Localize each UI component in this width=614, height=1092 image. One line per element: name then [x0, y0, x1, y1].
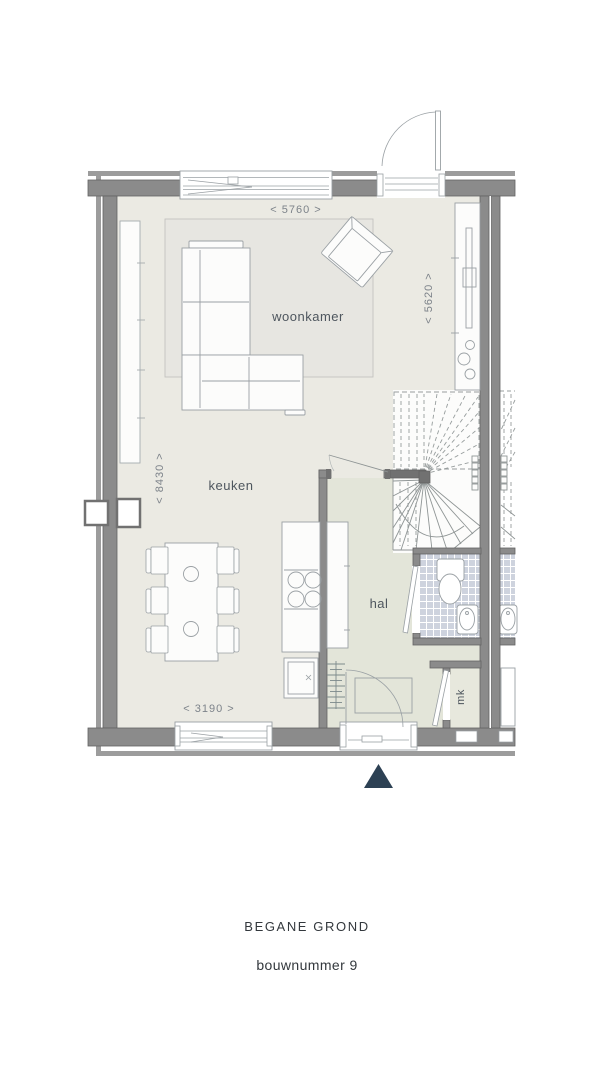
dimension-left: < 8430 > [154, 452, 166, 503]
dining-table [165, 543, 218, 661]
neighbour-mk [501, 668, 515, 726]
wc-room [420, 554, 480, 638]
dimension-top: < 5760 > [270, 204, 321, 216]
floor-title: BEGANE GROND [0, 919, 614, 934]
dimension-right: < 5620 > [423, 272, 435, 323]
room-label-hall: hal [370, 596, 389, 611]
room-label-mk: mk [455, 689, 467, 705]
build-number: bouwnummer 9 [0, 957, 614, 973]
door-step [362, 736, 382, 742]
entry-door-top [377, 111, 445, 198]
room-label-living: woonkamer [271, 309, 344, 324]
door-swing-arc [382, 112, 436, 166]
door-leaf [436, 111, 441, 170]
hall-cabinet [327, 522, 350, 648]
neighbour-wc-sink [499, 605, 517, 634]
kitchen-sink [284, 658, 318, 698]
stair-balusters [472, 456, 478, 490]
dimension-bottom: < 3190 > [183, 703, 234, 715]
neighbour-unit [499, 391, 517, 726]
room-label-kitchen: keuken [209, 478, 254, 493]
living-window [180, 171, 332, 199]
wall-counter [451, 203, 480, 390]
north-arrow-icon [364, 764, 393, 788]
floorplan-page: < 5760 > < 5620 > < 8430 > < 3190 > woon… [0, 0, 614, 1092]
kitchen-window-bottom [175, 722, 272, 750]
wc-sink [457, 605, 478, 634]
kitchen-island [282, 522, 321, 698]
